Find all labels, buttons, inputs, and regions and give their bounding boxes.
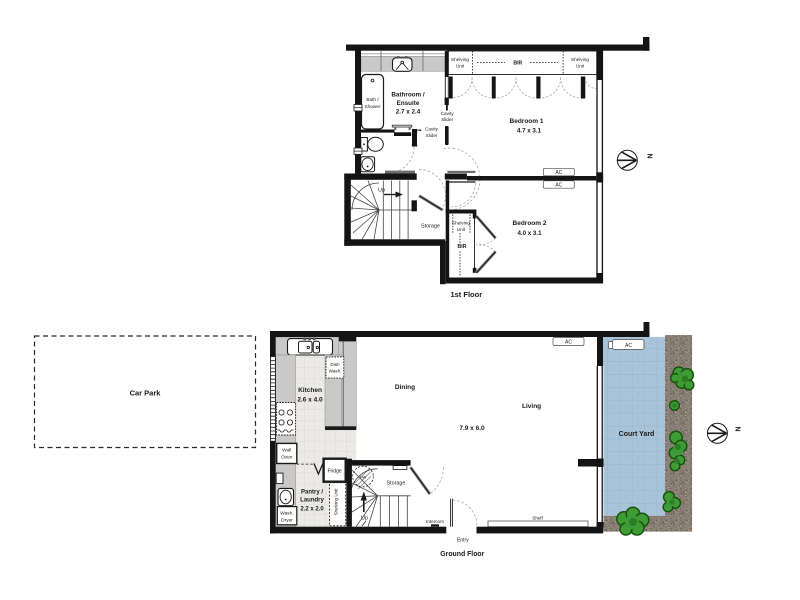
svg-text:Court Yard: Court Yard [619,431,655,438]
svg-text:Dryer: Dryer [281,518,293,524]
svg-text:Bedroom 2: Bedroom 2 [513,220,547,227]
svg-text:2.6 x 4.0: 2.6 x 4.0 [297,397,323,404]
svg-text:Shelf: Shelf [532,516,543,521]
svg-text:4.7 x 3.1: 4.7 x 3.1 [517,127,542,134]
svg-text:Intercom: Intercom [426,519,444,524]
svg-text:Dish: Dish [330,362,340,367]
svg-text:Bedroom 1: Bedroom 1 [510,118,544,125]
svg-text:Cavity: Cavity [441,111,455,116]
svg-text:Slider: Slider [426,133,438,138]
svg-text:Wash.: Wash. [329,368,342,373]
svg-text:N: N [645,153,652,158]
svg-text:Shelving: Shelving [452,221,470,226]
svg-text:Shelving: Shelving [571,57,589,62]
svg-text:AC: AC [555,170,562,176]
svg-text:4.0 x 3.1: 4.0 x 3.1 [517,230,542,237]
svg-text:Bathroom /: Bathroom / [391,92,424,99]
svg-text:Ground Floor: Ground Floor [440,551,484,558]
svg-text:1st Floor: 1st Floor [450,290,482,299]
svg-text:Wash.: Wash. [280,511,293,517]
svg-text:Ensuite: Ensuite [397,100,420,107]
svg-text:AC: AC [565,339,572,345]
svg-text:Fridge: Fridge [328,469,342,475]
svg-text:Wall: Wall [282,448,291,454]
svg-text:N: N [734,426,741,431]
svg-text:Unit: Unit [457,227,466,232]
svg-text:Shelving: Shelving [451,57,469,62]
svg-text:Laundry: Laundry [300,498,324,504]
svg-text:Up: Up [378,188,385,194]
svg-text:Shower: Shower [365,104,381,109]
svg-text:2.2 x 2.0: 2.2 x 2.0 [300,507,324,513]
svg-text:Up: Up [361,516,368,522]
svg-text:Pantry /: Pantry / [301,490,323,496]
svg-text:Storage: Storage [421,224,440,230]
svg-text:Unit: Unit [576,64,585,69]
svg-text:Car Park: Car Park [130,389,162,398]
svg-text:AC: AC [625,343,632,349]
svg-text:Shelving Unit: Shelving Unit [334,488,339,516]
svg-text:Living: Living [522,403,541,410]
svg-text:Unit: Unit [456,64,465,69]
svg-text:Slider: Slider [441,117,453,122]
svg-text:BIR: BIR [513,61,522,67]
svg-text:Entry: Entry [457,538,469,544]
svg-text:Oven: Oven [281,455,293,461]
svg-text:Bath /: Bath / [366,97,379,102]
svg-text:AC: AC [555,183,562,189]
svg-text:7.9 x 6.0: 7.9 x 6.0 [459,425,485,432]
svg-text:Storage: Storage [387,481,406,487]
svg-text:Cavity: Cavity [425,127,439,132]
svg-text:Dining: Dining [395,384,415,391]
svg-text:Kitchen: Kitchen [298,387,322,394]
svg-text:BIR: BIR [458,244,467,250]
svg-text:2.7 x 2.4: 2.7 x 2.4 [396,109,421,116]
